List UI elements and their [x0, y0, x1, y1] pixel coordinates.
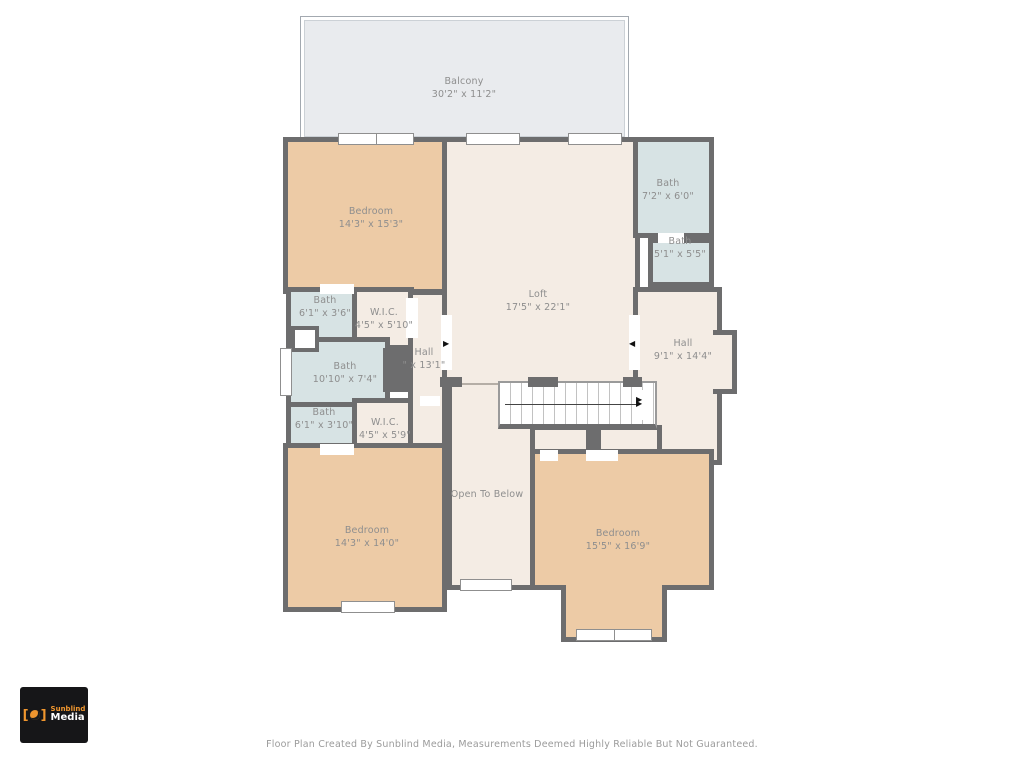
window-top-loft-2 [568, 133, 622, 145]
room-name: Bath [299, 295, 351, 308]
room-name: Bedroom [335, 525, 400, 538]
door-gap-bedroomTL-bath [320, 284, 354, 294]
disclaimer-text: Floor Plan Created By Sunblind Media, Me… [0, 739, 1024, 750]
label-loft: Loft 17'5" x 22'1" [506, 289, 571, 315]
room-dims: 4'5" x 5'10" [355, 320, 413, 333]
door-gap-wicB-hall [420, 396, 440, 406]
wall-chunk-loft-2 [528, 377, 558, 387]
label-bath-right-small: Bath 5'1" x 5'5" [654, 236, 706, 262]
bath-alcove [291, 326, 319, 352]
door-arrow-loft-right-icon: ◀ [629, 340, 635, 348]
window-bottom-open-below [460, 579, 512, 591]
label-bedroom-bottom-left: Bedroom 14'3" x 14'0" [335, 525, 400, 551]
floor-plan-page: ▶ ▶ ◀ ▶ Balcony 30'2" x 11'2" Bedroom 14… [0, 0, 1024, 767]
room-name: Balcony [432, 76, 497, 89]
stairs-direction-line [505, 404, 638, 405]
room-name: Bath [313, 361, 378, 374]
room-name: Bath [295, 407, 353, 420]
label-bath-mid-2: Bath 10'10" x 7'4" [313, 361, 378, 387]
sunblind-media-logo: [] Sunblind Media [20, 687, 88, 743]
label-open-to-below: Open To Below [451, 489, 524, 502]
window-mullion [614, 630, 615, 640]
room-dims: 10'10" x 7'4" [313, 374, 378, 387]
window-bottom-bedroomBR [576, 629, 652, 641]
door-arrow-loft-left-icon: ▶ [443, 340, 449, 348]
room-name: Hall [403, 347, 446, 360]
wall-chunk-loft-3 [623, 377, 642, 387]
label-hall-right: Hall 9'1" x 14'4" [654, 338, 712, 364]
label-hall-small: Hall " x 13'1" [403, 347, 446, 373]
window-top-loft-1 [466, 133, 520, 145]
logo-brand-bottom: Media [51, 713, 86, 724]
room-name: Bath [642, 178, 694, 191]
room-dims: 6'1" x 3'6" [299, 308, 351, 321]
room-name: Bath [654, 236, 706, 249]
label-wic-top: W.I.C. 4'5" x 5'10" [355, 307, 413, 333]
room-name: Open To Below [451, 489, 524, 502]
label-bedroom-top-left: Bedroom 14'3" x 15'3" [339, 206, 404, 232]
room-dims: 14'3" x 14'0" [335, 538, 400, 551]
label-bath-mid-3: Bath 6'1" x 3'10" [295, 407, 353, 433]
room-dims: 15'5" x 16'9" [586, 541, 651, 554]
room-name: W.I.C. [355, 307, 413, 320]
window-top-bedroom [338, 133, 414, 145]
room-name: Loft [506, 289, 571, 302]
room-dims: 7'2" x 6'0" [642, 191, 694, 204]
window-left-bath [280, 348, 292, 396]
sunblind-swirl-icon: [] [23, 708, 47, 723]
door-arrow-hall-icon: ▶ [636, 396, 642, 404]
room-dims: 9'1" x 14'4" [654, 351, 712, 364]
room-bedroom-bottom-right [530, 449, 714, 590]
room-dims: 4'5" x 5'9" [359, 430, 411, 443]
door-gap-bedroomBR-2 [586, 450, 618, 461]
room-name: Bedroom [586, 528, 651, 541]
room-dims: 17'5" x 22'1" [506, 302, 571, 315]
room-name: W.I.C. [359, 417, 411, 430]
label-bath-top-right: Bath 7'2" x 6'0" [642, 178, 694, 204]
label-bath-mid-1: Bath 6'1" x 3'6" [299, 295, 351, 321]
wall-chunk-loft-1 [440, 377, 462, 387]
room-dims: 5'1" x 5'5" [654, 249, 706, 262]
room-loft [442, 137, 640, 385]
room-dims: 14'3" x 15'3" [339, 219, 404, 232]
room-name: Bedroom [339, 206, 404, 219]
label-bedroom-bottom-right: Bedroom 15'5" x 16'9" [586, 528, 651, 554]
room-dims: " x 13'1" [403, 360, 446, 373]
room-hall-right-bump [713, 330, 737, 394]
room-dims: 6'1" x 3'10" [295, 420, 353, 433]
room-dims: 30'2" x 11'2" [432, 89, 497, 102]
label-wic-bottom: W.I.C. 4'5" x 5'9" [359, 417, 411, 443]
window-bottom-bedroomBL [341, 601, 395, 613]
door-gap-bedroomBR-1 [540, 450, 558, 461]
window-mullion [376, 134, 377, 144]
room-name: Hall [654, 338, 712, 351]
door-gap-bedroomBL-top [320, 444, 354, 455]
label-balcony: Balcony 30'2" x 11'2" [432, 76, 497, 102]
